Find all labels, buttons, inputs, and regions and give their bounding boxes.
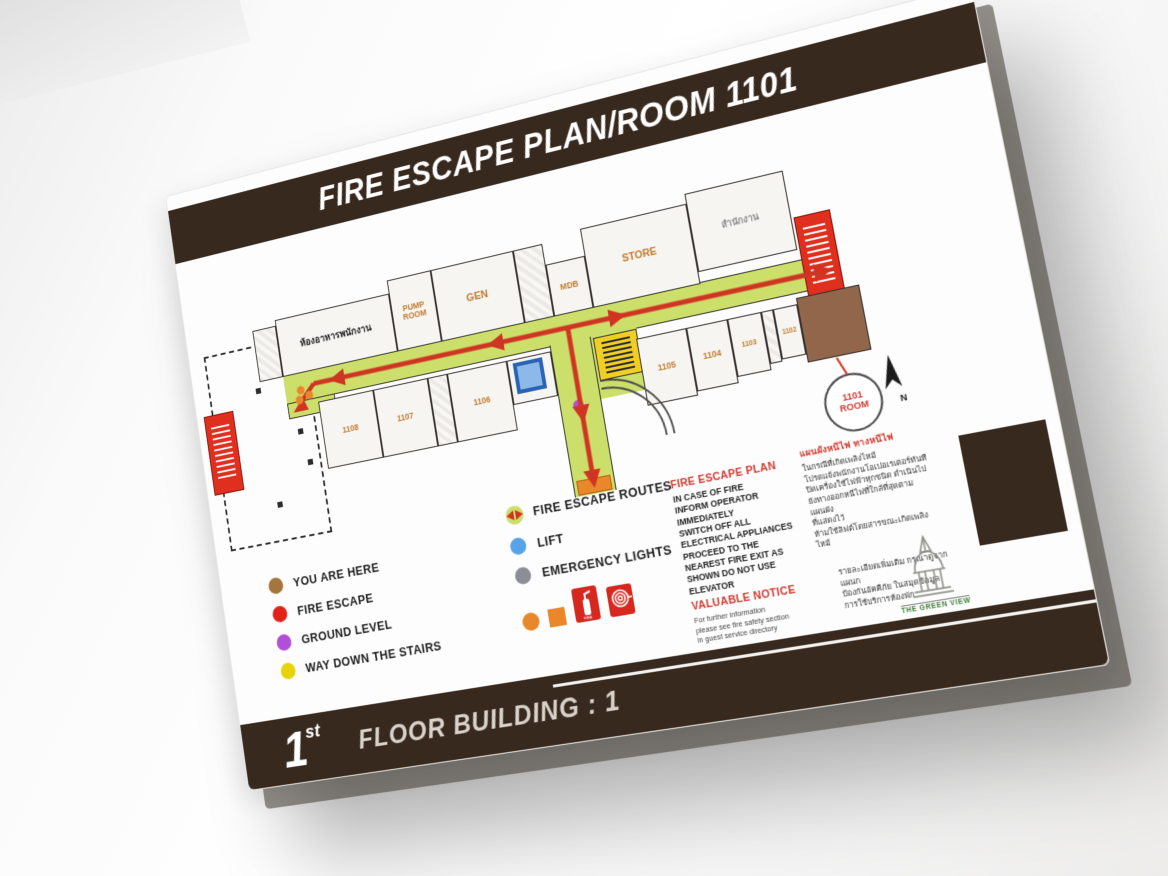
column-marker xyxy=(277,501,283,508)
room-1108: 1108 xyxy=(318,390,383,469)
way-down-stairs-dot-icon xyxy=(280,662,297,681)
floor-building-label: FLOOR BUILDING : 1 xyxy=(356,684,622,756)
fire-escape-dot-icon xyxy=(272,605,289,624)
north-arrow-icon xyxy=(879,353,902,389)
equipment-circle-icon xyxy=(521,611,541,632)
legend-left: YOU ARE HERE FIRE ESCAPE GROUND LEVEL WA… xyxy=(268,550,445,693)
north-label: N xyxy=(899,392,908,404)
pagoda-logo-icon xyxy=(894,530,964,605)
you-are-here-dot-icon xyxy=(268,576,285,595)
fire-hose-sign-icon xyxy=(606,583,636,617)
column-marker xyxy=(256,388,262,395)
fire-escape-plan-text: IN CASE OF FIREINFORM OPERATORIMMEDIATEL… xyxy=(672,473,805,598)
emergency-lights-dot-icon xyxy=(514,566,532,586)
room-office: สำนักงาน xyxy=(684,171,797,273)
column-marker xyxy=(298,428,304,435)
lift-icon xyxy=(513,357,548,394)
background-shadow xyxy=(0,0,250,115)
room-1106: 1106 xyxy=(447,361,518,443)
floor-suffix: st xyxy=(304,721,322,744)
column-marker xyxy=(307,459,313,466)
lift-dot-icon xyxy=(509,536,527,556)
deco-block-right xyxy=(958,419,1068,545)
equipment-square-icon xyxy=(547,607,567,628)
way-down-stairs-icon xyxy=(593,329,644,381)
fire-escape-route-icon xyxy=(504,504,526,527)
fire-escape-sign: FIRE ESCAPE PLAN/ROOM 1101 ห้องอาหารพนัก… xyxy=(165,0,1110,791)
photo-background: FIRE ESCAPE PLAN/ROOM 1101 ห้องอาหารพนัก… xyxy=(0,0,1168,876)
hotel-logo: THE GREEN VIEW xyxy=(881,510,976,616)
fire-extinguisher-sign-icon: FIRE xyxy=(571,585,601,623)
ground-level-dot-icon xyxy=(276,633,293,652)
room-1101-callout: 1101 ROOM xyxy=(819,368,888,437)
fire-escape-plan-notice: FIRE ESCAPE PLAN IN CASE OF FIREINFORM O… xyxy=(670,458,806,598)
room-1101-you-are-here xyxy=(796,284,872,362)
